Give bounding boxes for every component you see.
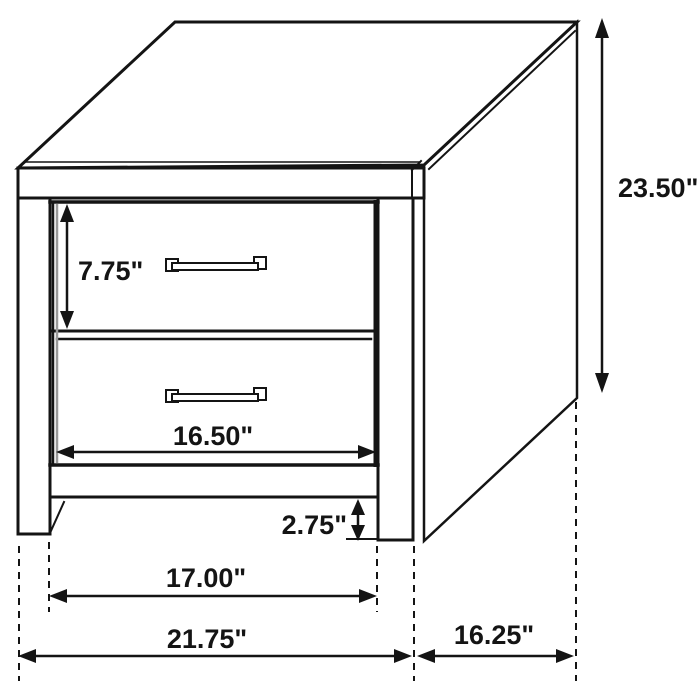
diagram-canvas: 7.75" 16.50" 23.50" 2.75" 17.00" 21.75" … bbox=[0, 0, 700, 700]
drawer-1-handle bbox=[166, 257, 266, 271]
dim-foot-height-arrow bbox=[351, 499, 365, 541]
dim-drawer-width-label: 16.50" bbox=[173, 421, 253, 451]
dim-depth-label: 16.25" bbox=[454, 620, 534, 650]
dim-foot-height-label: 2.75" bbox=[282, 510, 347, 540]
dim-overall-height-arrow bbox=[595, 18, 609, 393]
dim-between-legs-label: 17.00" bbox=[166, 563, 246, 593]
drawer-2-handle bbox=[166, 388, 266, 402]
dim-overall-width-label: 21.75" bbox=[167, 624, 247, 654]
right-leg bbox=[378, 198, 413, 540]
dim-overall-height-label: 23.50" bbox=[618, 173, 698, 203]
dim-depth-arrow bbox=[417, 649, 574, 663]
dim-drawer-height-arrow bbox=[60, 204, 74, 329]
left-leg-inner-edge bbox=[50, 502, 64, 533]
top-band bbox=[18, 168, 424, 198]
left-leg bbox=[18, 198, 50, 534]
dim-drawer-height-label: 7.75" bbox=[78, 256, 143, 286]
nightstand-dimension-diagram: 7.75" 16.50" 23.50" 2.75" 17.00" 21.75" … bbox=[0, 0, 700, 700]
